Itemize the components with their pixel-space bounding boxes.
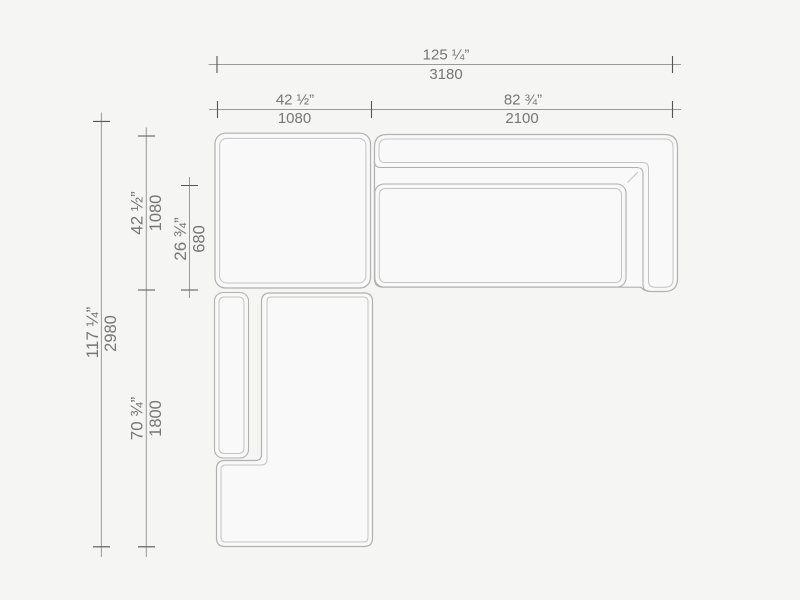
- svg-text:2980: 2980: [102, 315, 120, 352]
- svg-text:680: 680: [190, 225, 208, 253]
- svg-text:3180: 3180: [429, 66, 462, 83]
- svg-text:26 ¾”: 26 ¾”: [171, 217, 190, 261]
- svg-text:1080: 1080: [147, 195, 165, 232]
- svg-text:125 ¼”: 125 ¼”: [423, 47, 470, 64]
- svg-text:42 ½”: 42 ½”: [276, 92, 314, 109]
- svg-text:117 ¼”: 117 ¼”: [83, 306, 102, 358]
- svg-text:1800: 1800: [147, 400, 165, 437]
- svg-text:1080: 1080: [278, 110, 311, 127]
- svg-text:70 ¾”: 70 ¾”: [128, 396, 147, 440]
- svg-text:82 ¾”: 82 ¾”: [504, 92, 542, 109]
- svg-text:2100: 2100: [505, 110, 538, 127]
- svg-text:42 ½”: 42 ½”: [128, 191, 147, 235]
